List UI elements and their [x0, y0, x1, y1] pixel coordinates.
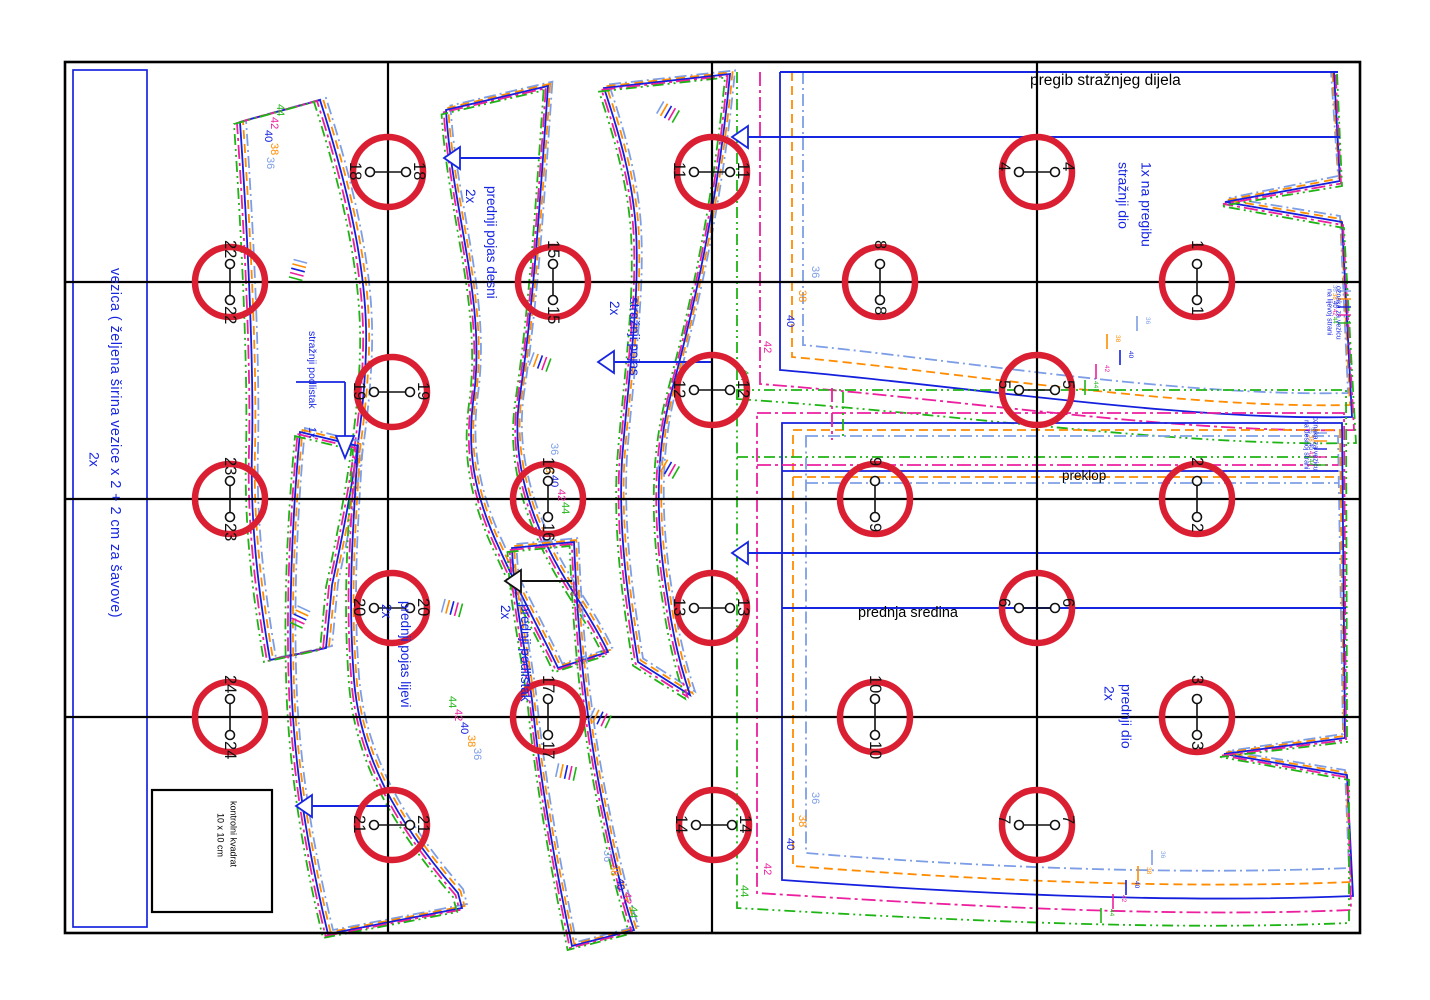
notch-7-size-36 — [294, 259, 308, 263]
notch-4-size-42 — [455, 602, 459, 616]
match-marker-number-18-b: 18 — [410, 162, 428, 180]
match-marker-number-8-a: 8 — [871, 240, 889, 249]
match-marker-number-16-b: 16 — [539, 523, 557, 541]
size-label-42-11: 42 — [268, 117, 280, 129]
match-marker-number-4-b: 4 — [1059, 162, 1077, 171]
preklop-label: preklop — [1062, 469, 1106, 483]
notch-5-size-42 — [569, 766, 572, 780]
match-marker-dot-2-1 — [1193, 513, 1202, 522]
notch-5-size-44 — [573, 767, 576, 781]
match-marker-dot-13-1 — [726, 604, 735, 613]
hem-tick-label-8: 42 — [1120, 895, 1127, 903]
prednji-dio-outline-size-36 — [806, 436, 1349, 871]
match-marker-number-15-a: 15 — [544, 240, 562, 258]
match-marker-dot-14-1 — [728, 821, 737, 830]
size-label-44-25: 44 — [446, 696, 458, 708]
straznji-dio-label: stražnji dio — [1116, 162, 1131, 229]
match-marker-number-13-b: 13 — [734, 598, 752, 616]
hem-tick-label-7: 40 — [1133, 881, 1140, 889]
match-marker-dot-14-0 — [692, 821, 701, 830]
match-marker-number-12-a: 12 — [670, 380, 688, 398]
pattern-sheet: 3638404244363840424444424038363638404244… — [0, 0, 1430, 1000]
match-marker-dot-2-0 — [1193, 477, 1202, 486]
notch-4-size-44 — [459, 604, 463, 618]
match-marker-number-14-b: 14 — [736, 815, 754, 833]
straznji-dio-outline-size-38 — [792, 72, 1350, 405]
hem-tick-label-1: 38 — [1114, 335, 1121, 343]
notch-0-size-40 — [538, 355, 543, 368]
match-marker-number-16-a: 16 — [539, 457, 557, 475]
size-label-40-27: 40 — [458, 722, 470, 734]
straznji-pojas-outline-size-42 — [602, 76, 728, 697]
prednji-dio-qty: 2x — [1102, 686, 1117, 701]
straznji-pojas-outline-size-44 — [599, 78, 725, 699]
match-marker-number-9-b: 9 — [866, 523, 884, 532]
size-label-36-29: 36 — [471, 748, 483, 760]
match-marker-number-19-a: 19 — [350, 382, 368, 400]
prednji-podlistak-qty: 2x — [498, 605, 512, 619]
match-marker-dot-8-0 — [876, 260, 885, 269]
straznji-pojas-label: stražnji pojas — [627, 297, 641, 376]
match-marker-number-23-a: 23 — [221, 457, 239, 475]
control-square-label-2: 10 x 10 cm — [215, 813, 224, 857]
match-marker-number-17-b: 17 — [539, 741, 557, 759]
size-label-38-1: 38 — [796, 290, 808, 302]
notch-4-size-40 — [450, 601, 454, 615]
size-label-38-6: 38 — [796, 815, 808, 827]
prednji-pojas-lijevi-qty: 2x — [379, 604, 393, 618]
vezica-qty: 2x — [87, 452, 102, 467]
match-marker-number-24-b: 24 — [221, 741, 239, 759]
match-marker-number-10-b: 10 — [866, 741, 884, 759]
size-label-36-0: 36 — [809, 266, 821, 278]
match-marker-number-5-b: 5 — [1059, 380, 1077, 389]
hem-tick-label-0: 36 — [1144, 317, 1151, 325]
notch-4-size-36 — [441, 599, 445, 613]
straznji-dio-qty: 1x na pregibu — [1139, 162, 1154, 247]
size-label-36-14: 36 — [264, 157, 276, 169]
prednji-dio-label: prednji dio — [1119, 684, 1134, 749]
hem-tick-label-3: 42 — [1103, 365, 1110, 373]
match-marker-number-21-a: 21 — [350, 815, 368, 833]
prednja-sredina-label: prednja sredina — [858, 606, 958, 621]
tie-mark-right-label-2: na desnoj strani — [1302, 420, 1309, 469]
match-marker-number-2-b: 2 — [1188, 523, 1206, 532]
match-marker-number-20-b: 20 — [414, 598, 432, 616]
straznji-pojas-grain-arrow-arrowhead — [598, 351, 614, 373]
straznji-podlistak-qty: 1x — [306, 427, 317, 438]
size-label-38-13: 38 — [268, 143, 280, 155]
prednji-pojas-lijevi-outline-size-44 — [285, 436, 457, 938]
match-marker-number-15-b: 15 — [544, 306, 562, 324]
match-marker-dot-5-0 — [1015, 386, 1024, 395]
size-label-44-10: 44 — [274, 104, 286, 116]
match-marker-dot-15-0 — [549, 260, 558, 269]
match-marker-dot-24-0 — [226, 695, 235, 704]
match-marker-number-21-b: 21 — [414, 815, 432, 833]
match-marker-dot-6-1 — [1051, 604, 1060, 613]
match-marker-number-17-a: 17 — [539, 675, 557, 693]
hem-tick-label-2: 40 — [1127, 351, 1134, 359]
size-label-42-8: 42 — [761, 863, 773, 875]
match-marker-dot-21-0 — [370, 821, 379, 830]
match-marker-number-18-a: 18 — [346, 162, 364, 180]
match-marker-number-22-b: 22 — [221, 306, 239, 324]
notch-7-size-38 — [292, 264, 306, 268]
match-marker-number-8-b: 8 — [871, 306, 889, 315]
notch-7-size-42 — [290, 273, 304, 277]
match-marker-dot-5-1 — [1051, 386, 1060, 395]
control-square-label-1: kontrolni kvadrat — [228, 801, 237, 867]
match-marker-number-10-a: 10 — [866, 675, 884, 693]
match-marker-dot-18-1 — [402, 168, 411, 177]
size-label-42-23: 42 — [621, 892, 633, 904]
match-marker-number-23-b: 23 — [221, 523, 239, 541]
match-marker-dot-19-0 — [370, 388, 379, 397]
match-marker-number-11-a: 11 — [670, 162, 688, 179]
match-marker-dot-3-0 — [1193, 695, 1202, 704]
prednji-pojas-lijevi-label: prednji pojas lijevi — [398, 601, 412, 708]
match-marker-dot-13-0 — [690, 604, 699, 613]
match-marker-dot-4-1 — [1051, 168, 1060, 177]
prednji-dio-outline-size-40 — [782, 423, 1353, 899]
match-marker-number-5-a: 5 — [995, 380, 1013, 389]
notch-5-size-36 — [556, 763, 559, 777]
notch-0-size-44 — [546, 359, 551, 372]
prednji-pojas-desni-label: prednji pojas desni — [484, 186, 498, 299]
match-marker-number-11-b: 11 — [734, 162, 752, 179]
size-label-36-20: 36 — [601, 850, 613, 862]
match-marker-dot-10-0 — [871, 695, 880, 704]
match-marker-dot-10-1 — [871, 731, 880, 740]
match-marker-number-1-b: 1 — [1188, 306, 1206, 315]
size-label-44-9: 44 — [738, 885, 750, 897]
size-label-44-24: 44 — [627, 906, 639, 918]
match-marker-number-3-b: 3 — [1188, 741, 1206, 750]
match-marker-dot-17-1 — [544, 731, 553, 740]
match-marker-dot-15-1 — [549, 296, 558, 305]
control-square — [152, 790, 272, 912]
match-marker-number-4-a: 4 — [995, 162, 1013, 171]
tie-mark-left-label-1: oznaka za vezicu — [1334, 286, 1341, 340]
match-marker-number-3-a: 3 — [1188, 675, 1206, 684]
match-marker-dot-12-1 — [726, 386, 735, 395]
match-marker-number-19-b: 19 — [414, 382, 432, 400]
tie-mark-left-label-2: na lijevoj strani — [1325, 289, 1332, 335]
size-label-40-2: 40 — [784, 315, 796, 327]
match-marker-dot-7-0 — [1015, 821, 1024, 830]
vezica-label: vezica ( željena širina vezice x 2 + 2 c… — [107, 268, 122, 618]
match-marker-number-20-a: 20 — [350, 598, 368, 616]
size-label-42-26: 42 — [452, 709, 464, 721]
match-marker-number-14-a: 14 — [672, 815, 690, 833]
match-marker-number-6-b: 6 — [1059, 598, 1077, 607]
match-marker-dot-9-0 — [871, 477, 880, 486]
notch-7-size-44 — [289, 277, 303, 281]
prednji-pojas-lijevi-outline-size-42 — [288, 434, 460, 936]
size-label-36-5: 36 — [809, 792, 821, 804]
match-marker-dot-16-0 — [544, 477, 553, 486]
match-marker-dot-4-0 — [1015, 168, 1024, 177]
straznji-pojas-qty: 2x — [607, 301, 621, 315]
size-label-42-3: 42 — [761, 341, 773, 353]
notch-7-size-40 — [291, 268, 305, 272]
match-marker-dot-24-1 — [226, 731, 235, 740]
prednji-pojas-desni-outline-size-38 — [448, 84, 610, 666]
match-marker-dot-3-1 — [1193, 731, 1202, 740]
prednji-pojas-desni-qty: 2x — [463, 189, 477, 203]
match-marker-dot-17-0 — [544, 695, 553, 704]
match-marker-number-2-a: 2 — [1188, 457, 1206, 466]
match-marker-dot-16-1 — [544, 513, 553, 522]
match-marker-dot-8-1 — [876, 296, 885, 305]
straznji-dio-outline-size-36 — [803, 72, 1348, 393]
front-grain-arrow-arrowhead — [732, 542, 748, 564]
match-marker-dot-22-0 — [226, 260, 235, 269]
match-marker-dot-18-0 — [366, 168, 375, 177]
prednji-pojas-lijevi-outline-size-36 — [295, 428, 467, 930]
size-label-38-21: 38 — [608, 864, 620, 876]
match-marker-dot-11-1 — [726, 168, 735, 177]
match-marker-number-9-a: 9 — [866, 457, 884, 466]
match-marker-dot-21-1 — [406, 821, 415, 830]
size-label-44-19: 44 — [559, 502, 571, 514]
notch-5-size-40 — [565, 765, 568, 779]
match-marker-number-1-a: 1 — [1188, 240, 1206, 249]
match-marker-dot-23-1 — [226, 513, 235, 522]
size-label-40-7: 40 — [784, 838, 796, 850]
match-marker-number-24-a: 24 — [221, 675, 239, 693]
hem-tick-label-4: 44 — [1092, 381, 1099, 389]
match-marker-number-7-b: 7 — [1059, 815, 1077, 824]
notch-0-size-38 — [533, 354, 538, 367]
match-marker-number-13-a: 13 — [670, 598, 688, 616]
notch-5-size-38 — [560, 764, 563, 778]
notch-0-size-42 — [542, 357, 547, 370]
notch-4-size-38 — [446, 600, 450, 614]
match-marker-number-22-a: 22 — [221, 240, 239, 258]
match-marker-dot-7-1 — [1051, 821, 1060, 830]
match-marker-dot-6-0 — [1015, 604, 1024, 613]
size-label-42-18: 42 — [555, 489, 567, 501]
prednji-dio-outline-size-42 — [757, 413, 1351, 912]
fold-back-label: pregib stražnjeg dijela — [1030, 73, 1181, 89]
match-marker-dot-11-0 — [690, 168, 699, 177]
size-label-36-15: 36 — [548, 443, 560, 455]
match-marker-dot-19-1 — [406, 388, 415, 397]
match-marker-number-7-a: 7 — [995, 815, 1013, 824]
match-marker-number-6-a: 6 — [995, 598, 1013, 607]
hem-tick-label-6: 38 — [1145, 867, 1152, 875]
hem-tick-label-5: 36 — [1159, 851, 1166, 859]
match-marker-dot-1-0 — [1193, 260, 1202, 269]
straznji-podlistak-label: stražnji podlistak — [306, 331, 317, 409]
match-marker-dot-1-1 — [1193, 296, 1202, 305]
match-marker-dot-9-1 — [871, 513, 880, 522]
match-marker-dot-23-0 — [226, 477, 235, 486]
match-marker-dot-20-0 — [370, 604, 379, 613]
hem-tick-label-9: 44 — [1108, 909, 1115, 917]
match-marker-dot-22-1 — [226, 296, 235, 305]
tie-mark-right-label-1: oznaka za vezicu — [1311, 417, 1318, 471]
match-marker-dot-12-0 — [690, 386, 699, 395]
size-label-40-12: 40 — [262, 130, 274, 142]
straznji-dio-outline-size-44 — [737, 72, 1356, 443]
size-label-40-22: 40 — [614, 878, 626, 890]
match-marker-number-12-b: 12 — [734, 380, 752, 398]
prednji-podlistak-label: prednji podlistak — [518, 604, 532, 702]
size-label-38-28: 38 — [465, 735, 477, 747]
